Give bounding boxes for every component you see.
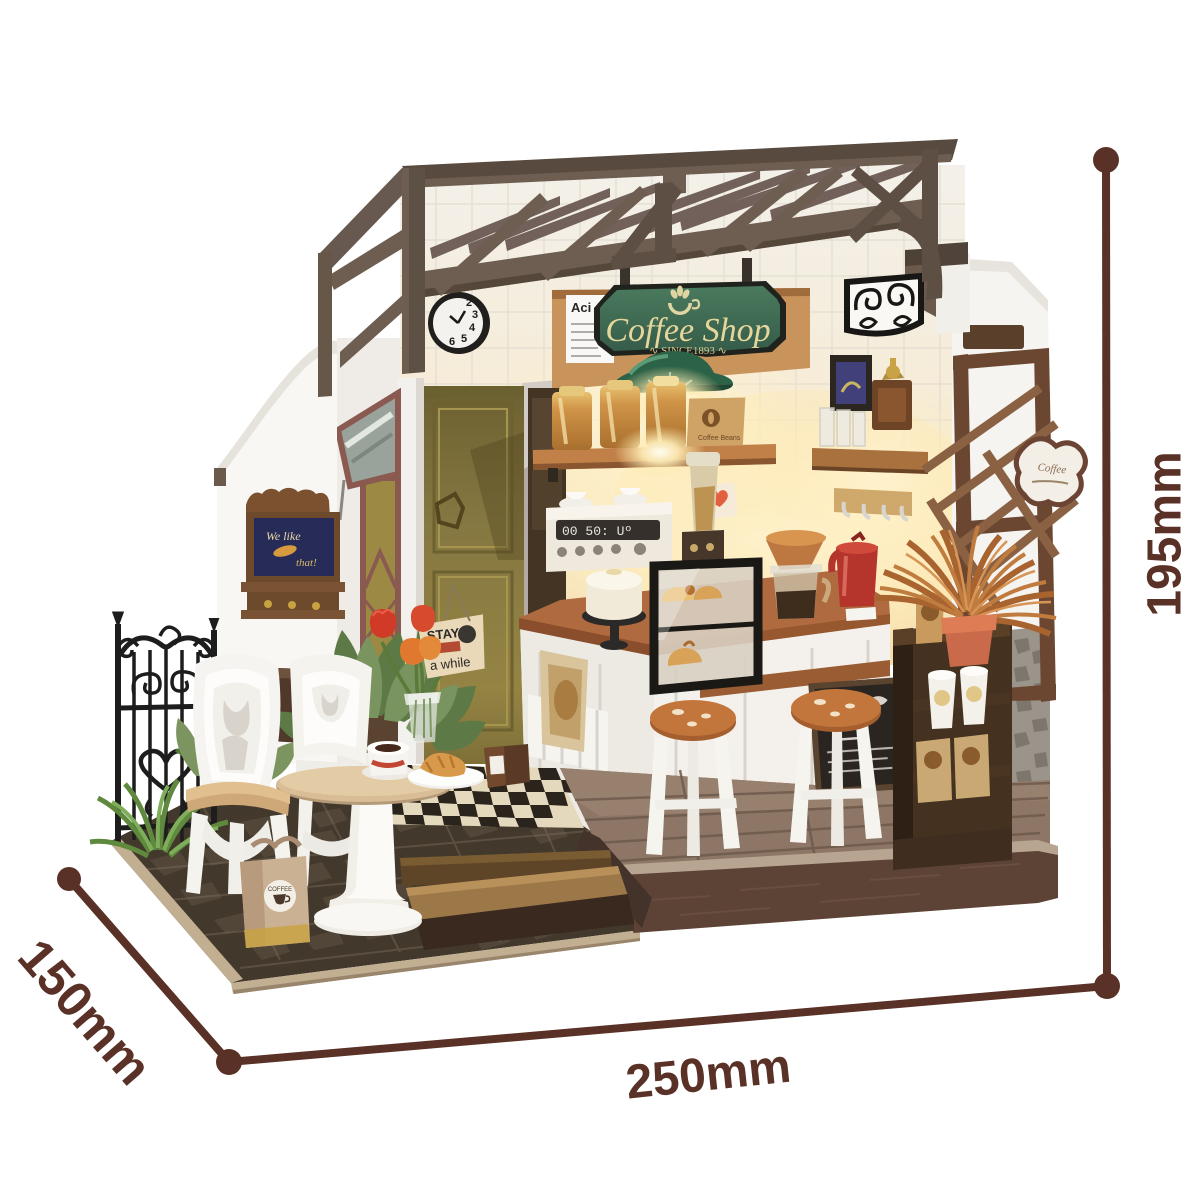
svg-text:Aci: Aci: [571, 300, 591, 315]
svg-text:195mm: 195mm: [1139, 451, 1192, 616]
svg-text:We like: We like: [266, 529, 301, 543]
svg-text:6: 6: [449, 336, 455, 348]
svg-text:5: 5: [461, 333, 467, 345]
svg-text:250mm: 250mm: [623, 1040, 793, 1110]
svg-text:Coffee Shop: Coffee Shop: [605, 312, 770, 349]
svg-text:3: 3: [472, 309, 478, 321]
svg-text:COFFEE: COFFEE: [268, 887, 292, 893]
svg-text:2: 2: [466, 297, 472, 309]
svg-text:Coffee Beans: Coffee Beans: [698, 435, 741, 442]
svg-text:that!: that!: [296, 557, 317, 569]
svg-text:00 50: Uº: 00 50: Uº: [562, 524, 632, 539]
svg-text:4: 4: [469, 322, 476, 334]
